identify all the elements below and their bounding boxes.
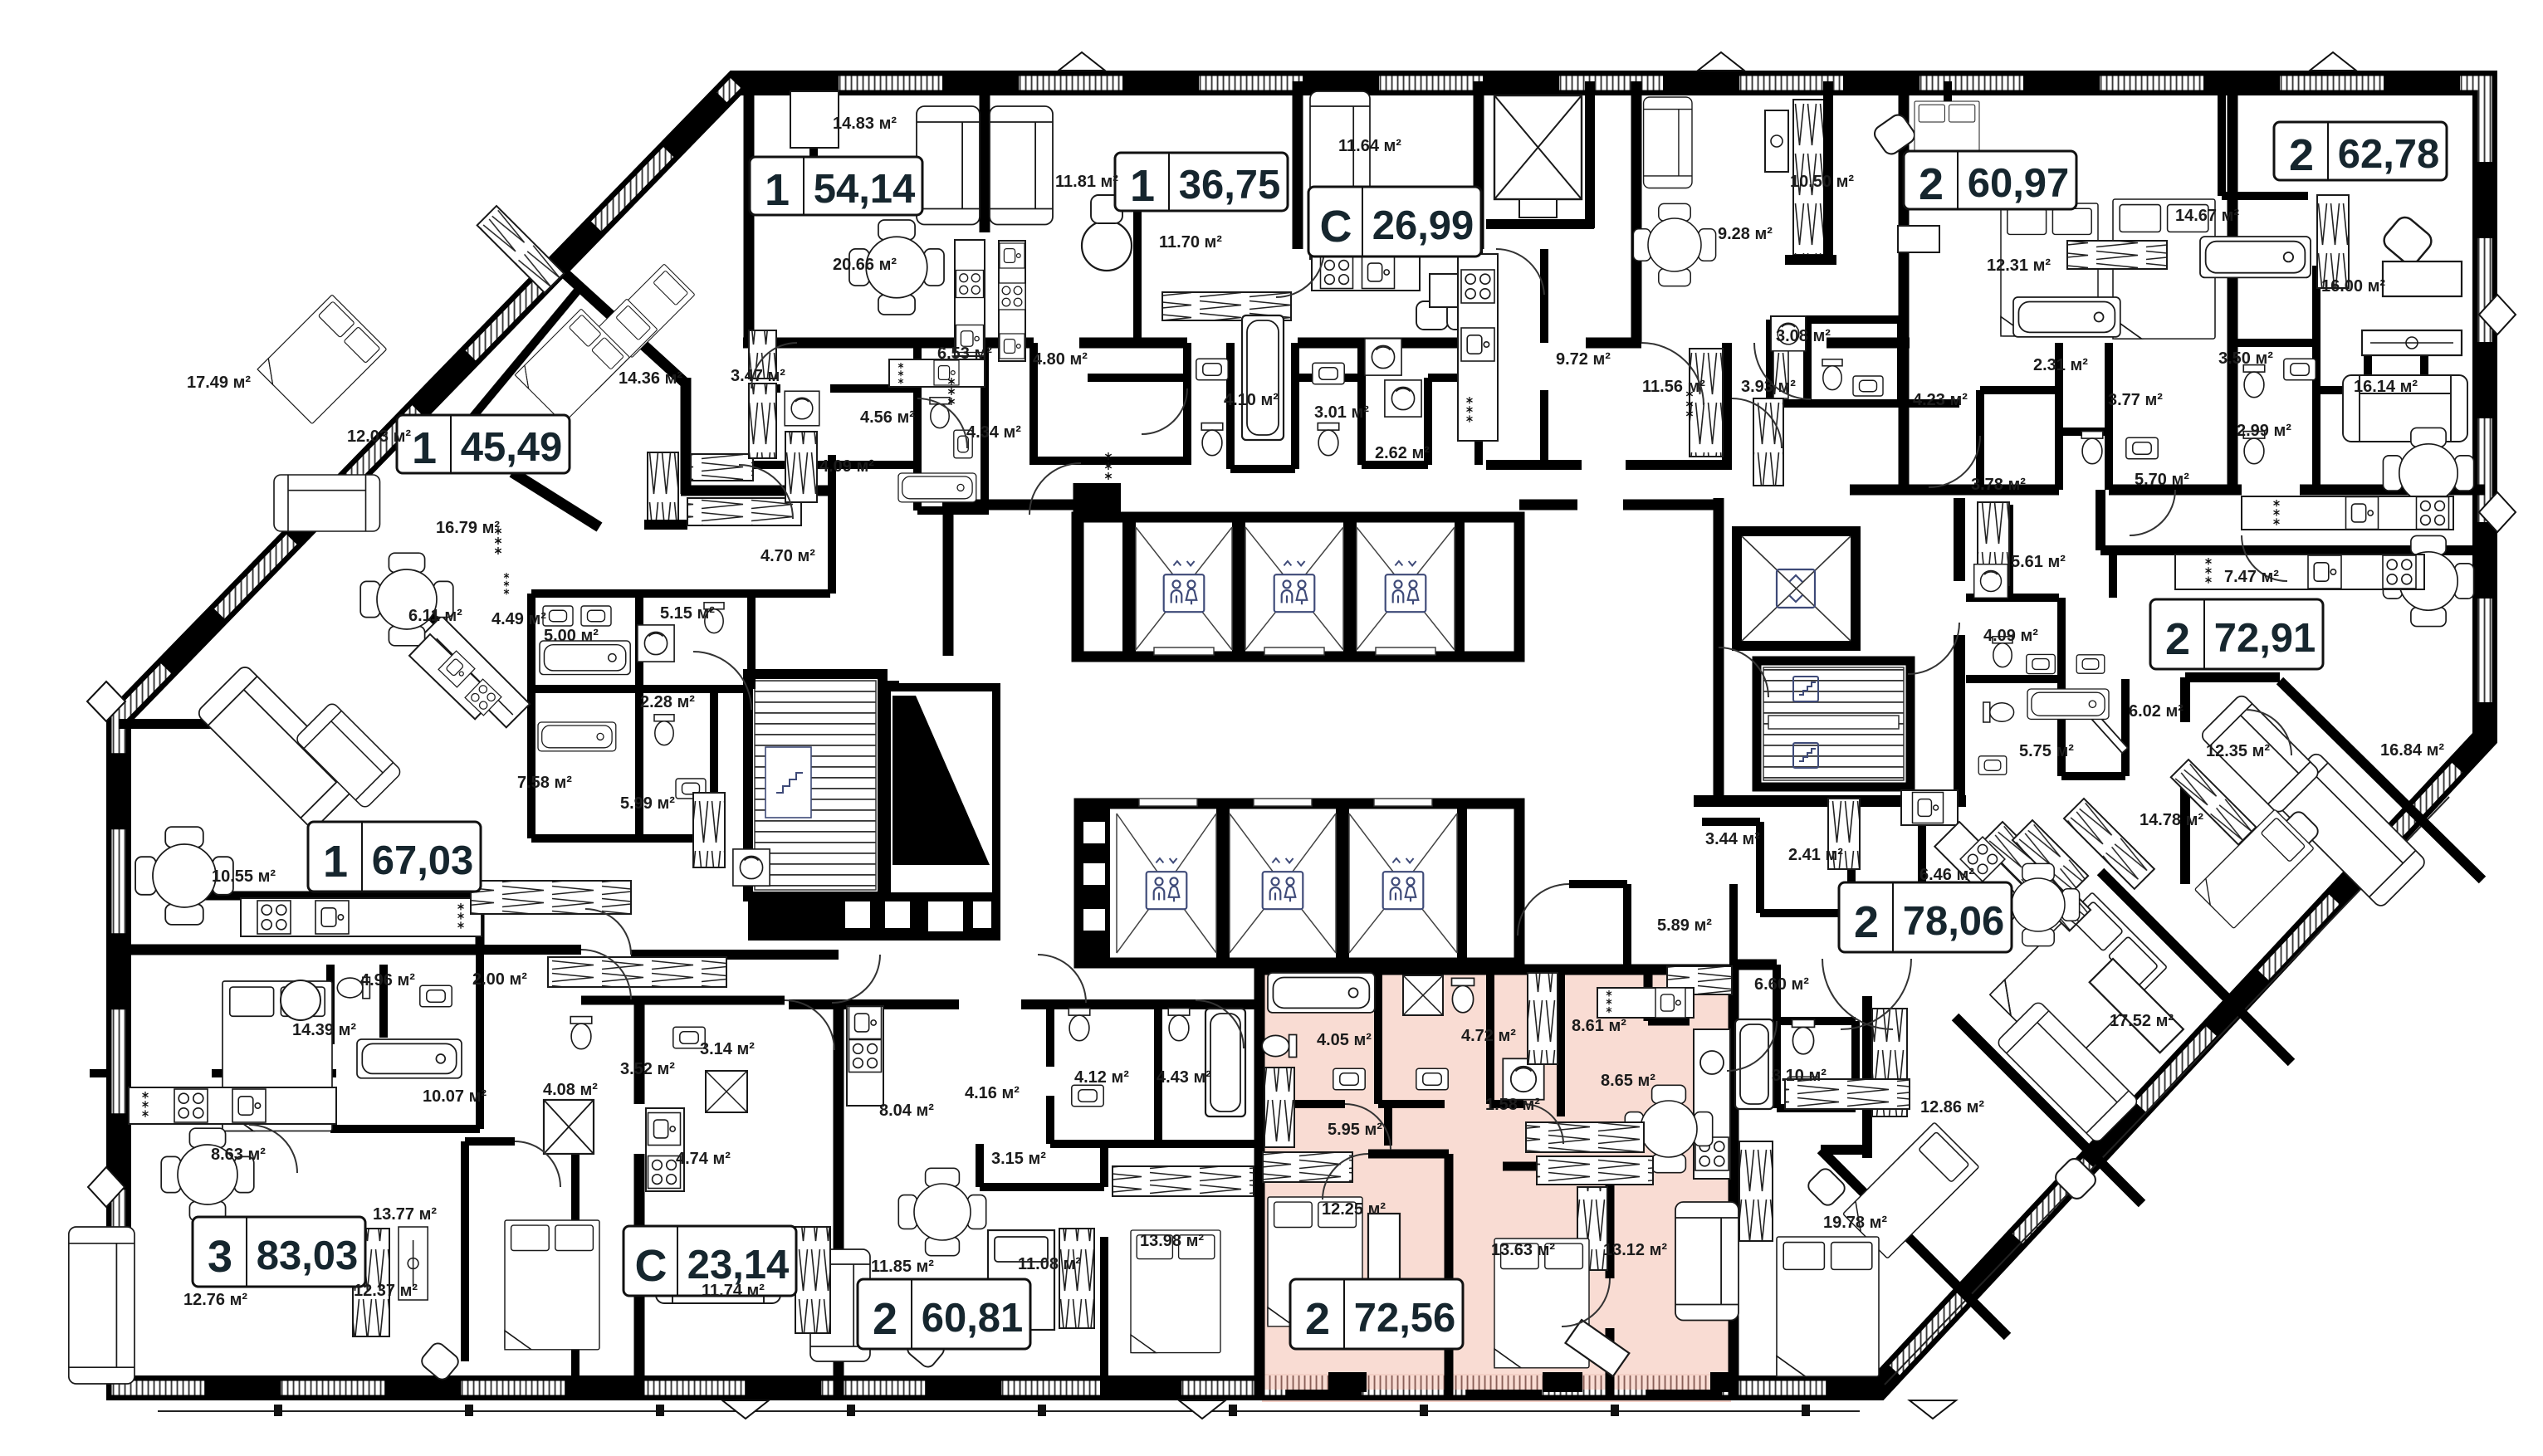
svg-text:10.55 м²: 10.55 м² — [212, 867, 276, 886]
svg-text:3.47 м²: 3.47 м² — [731, 367, 785, 385]
svg-text:14.83 м²: 14.83 м² — [833, 115, 897, 133]
svg-text:12.25 м²: 12.25 м² — [1322, 1200, 1386, 1219]
svg-text:12.35 м²: 12.35 м² — [2206, 742, 2270, 760]
svg-text:14.39 м²: 14.39 м² — [292, 1021, 356, 1039]
svg-text:C: C — [1320, 202, 1352, 252]
svg-text:4.05 м²: 4.05 м² — [1317, 1031, 1372, 1049]
svg-text:2: 2 — [873, 1294, 897, 1344]
svg-text:4.12 м²: 4.12 м² — [1074, 1068, 1129, 1087]
svg-text:2.41 м²: 2.41 м² — [1788, 846, 1843, 864]
svg-text:3.93 м²: 3.93 м² — [1741, 378, 1796, 396]
svg-text:12.03 м²: 12.03 м² — [347, 428, 411, 446]
svg-text:11.85 м²: 11.85 м² — [871, 1258, 934, 1276]
svg-text:4.09 м²: 4.09 м² — [819, 457, 874, 476]
svg-text:60,97: 60,97 — [1968, 161, 2070, 206]
svg-text:13.63 м²: 13.63 м² — [1491, 1241, 1555, 1259]
svg-text:60,81: 60,81 — [922, 1296, 1024, 1341]
svg-text:10.50 м²: 10.50 м² — [1790, 173, 1854, 191]
svg-text:C: C — [635, 1241, 668, 1291]
svg-text:72,56: 72,56 — [1354, 1296, 1456, 1341]
svg-text:2: 2 — [1919, 159, 1944, 209]
svg-text:67,03: 67,03 — [372, 838, 474, 883]
svg-text:9.28 м²: 9.28 м² — [1718, 225, 1773, 243]
svg-text:13.12 м²: 13.12 м² — [1603, 1241, 1667, 1259]
svg-text:3: 3 — [208, 1232, 232, 1282]
svg-text:83,03: 83,03 — [257, 1234, 359, 1278]
svg-text:62,78: 62,78 — [2338, 132, 2440, 177]
svg-text:17.52 м²: 17.52 м² — [2110, 1012, 2174, 1030]
svg-text:13.98 м²: 13.98 м² — [1140, 1232, 1204, 1250]
svg-text:6.02 м²: 6.02 м² — [2129, 702, 2184, 721]
svg-text:4.08 м²: 4.08 м² — [543, 1081, 598, 1099]
svg-text:16.00 м²: 16.00 м² — [2321, 277, 2385, 296]
svg-text:12.76 м²: 12.76 м² — [183, 1291, 247, 1309]
svg-text:2.99 м²: 2.99 м² — [2237, 422, 2291, 440]
svg-text:5.95 м²: 5.95 м² — [1328, 1121, 1382, 1139]
svg-text:12.31 м²: 12.31 м² — [1987, 257, 2051, 275]
svg-text:8.61 м²: 8.61 м² — [1572, 1017, 1626, 1035]
svg-text:11.56 м²: 11.56 м² — [1642, 378, 1705, 396]
svg-text:4.49 м²: 4.49 м² — [491, 610, 546, 628]
svg-text:4.70 м²: 4.70 м² — [760, 547, 815, 565]
svg-text:16.84 м²: 16.84 м² — [2380, 741, 2444, 760]
svg-text:3.52 м²: 3.52 м² — [620, 1060, 675, 1078]
svg-text:2: 2 — [1305, 1294, 1330, 1344]
svg-text:1: 1 — [323, 837, 348, 887]
svg-text:3.78 м²: 3.78 м² — [1971, 476, 2026, 494]
svg-text:2.62 м²: 2.62 м² — [1375, 444, 1430, 462]
svg-text:14.67 м²: 14.67 м² — [2175, 207, 2239, 225]
svg-text:23,14: 23,14 — [687, 1243, 790, 1287]
svg-text:1: 1 — [1130, 161, 1155, 211]
svg-text:7.58 м²: 7.58 м² — [517, 774, 572, 792]
svg-text:1: 1 — [765, 165, 790, 215]
svg-text:5.99 м²: 5.99 м² — [620, 794, 675, 813]
svg-text:16.79 м²: 16.79 м² — [436, 519, 500, 537]
svg-text:3.15 м²: 3.15 м² — [991, 1150, 1046, 1168]
svg-text:14.36 м²: 14.36 м² — [619, 369, 682, 388]
svg-text:19.78 м²: 19.78 м² — [1823, 1214, 1887, 1232]
svg-text:4.72 м²: 4.72 м² — [1461, 1027, 1516, 1045]
svg-text:11.70 м²: 11.70 м² — [1159, 233, 1222, 252]
svg-text:1: 1 — [412, 423, 437, 473]
svg-text:4.74 м²: 4.74 м² — [676, 1150, 731, 1168]
svg-text:45,49: 45,49 — [461, 425, 563, 470]
svg-text:3.50 м²: 3.50 м² — [2218, 349, 2273, 368]
svg-text:26,99: 26,99 — [1372, 203, 1474, 248]
svg-text:2.31 м²: 2.31 м² — [2033, 356, 2088, 374]
svg-text:14.78 м²: 14.78 м² — [2140, 811, 2203, 829]
svg-text:6.53 м²: 6.53 м² — [937, 344, 992, 363]
svg-text:5.75 м²: 5.75 м² — [2019, 742, 2074, 760]
svg-text:11.08 м²: 11.08 м² — [1018, 1255, 1081, 1273]
svg-text:4.23 м²: 4.23 м² — [1913, 391, 1968, 409]
svg-text:3.44 м²: 3.44 м² — [1705, 830, 1760, 848]
svg-text:6.46 м²: 6.46 м² — [1919, 866, 1974, 884]
svg-text:6.60 м²: 6.60 м² — [1754, 975, 1809, 994]
svg-text:16.14 м²: 16.14 м² — [2354, 378, 2418, 396]
svg-text:7.47 м²: 7.47 м² — [2224, 568, 2279, 586]
svg-text:20.66 м²: 20.66 м² — [833, 256, 897, 274]
svg-text:12.86 м²: 12.86 м² — [1920, 1098, 1984, 1116]
svg-text:4.09 м²: 4.09 м² — [1983, 627, 2038, 645]
svg-text:5.15 м²: 5.15 м² — [660, 604, 715, 623]
svg-text:4.56 м²: 4.56 м² — [860, 408, 915, 427]
svg-text:54,14: 54,14 — [814, 167, 916, 212]
svg-text:1.58 м²: 1.58 м² — [1485, 1096, 1540, 1114]
svg-text:8.04 м²: 8.04 м² — [879, 1102, 934, 1120]
svg-text:5.70 м²: 5.70 м² — [2135, 471, 2189, 489]
svg-text:3.77 м²: 3.77 м² — [2108, 391, 2163, 409]
svg-text:10.07 м²: 10.07 м² — [423, 1087, 487, 1106]
svg-text:13.77 м²: 13.77 м² — [373, 1205, 437, 1224]
svg-text:3.14 м²: 3.14 м² — [700, 1040, 755, 1058]
svg-text:2.28 м²: 2.28 м² — [640, 693, 695, 711]
svg-text:2: 2 — [2165, 614, 2190, 664]
svg-text:4.80 м²: 4.80 м² — [1033, 350, 1088, 369]
svg-text:3.08 м²: 3.08 м² — [1776, 327, 1831, 345]
svg-text:4.10 м²: 4.10 м² — [1224, 391, 1279, 409]
svg-text:2: 2 — [2289, 130, 2314, 180]
svg-text:36,75: 36,75 — [1179, 163, 1281, 208]
svg-text:5.89 м²: 5.89 м² — [1657, 916, 1712, 935]
svg-text:4.96 м²: 4.96 м² — [360, 971, 415, 989]
svg-text:11.64 м²: 11.64 м² — [1338, 137, 1401, 155]
svg-text:5.00 м²: 5.00 м² — [544, 627, 599, 645]
svg-text:17.49 м²: 17.49 м² — [187, 374, 251, 392]
svg-text:8.63 м²: 8.63 м² — [211, 1146, 266, 1164]
svg-text:3.01 м²: 3.01 м² — [1314, 403, 1369, 422]
svg-text:3.10 м²: 3.10 м² — [1772, 1067, 1827, 1085]
svg-text:2: 2 — [1854, 897, 1879, 947]
svg-text:12.37 м²: 12.37 м² — [354, 1282, 418, 1300]
svg-text:4.43 м²: 4.43 м² — [1157, 1068, 1211, 1087]
svg-text:78,06: 78,06 — [1903, 899, 2005, 944]
svg-text:8.65 м²: 8.65 м² — [1601, 1072, 1655, 1090]
svg-text:72,91: 72,91 — [2214, 616, 2316, 661]
svg-text:2.00 м²: 2.00 м² — [472, 970, 527, 989]
svg-text:6.11 м²: 6.11 м² — [408, 607, 462, 625]
svg-text:11.81 м²: 11.81 м² — [1055, 173, 1118, 191]
svg-text:11.74 м²: 11.74 м² — [702, 1282, 765, 1300]
svg-text:4.16 м²: 4.16 м² — [965, 1084, 1020, 1102]
svg-text:9.72 м²: 9.72 м² — [1556, 350, 1611, 369]
svg-text:4.34 м²: 4.34 м² — [966, 423, 1021, 442]
svg-text:5.61 м²: 5.61 м² — [2011, 553, 2066, 571]
